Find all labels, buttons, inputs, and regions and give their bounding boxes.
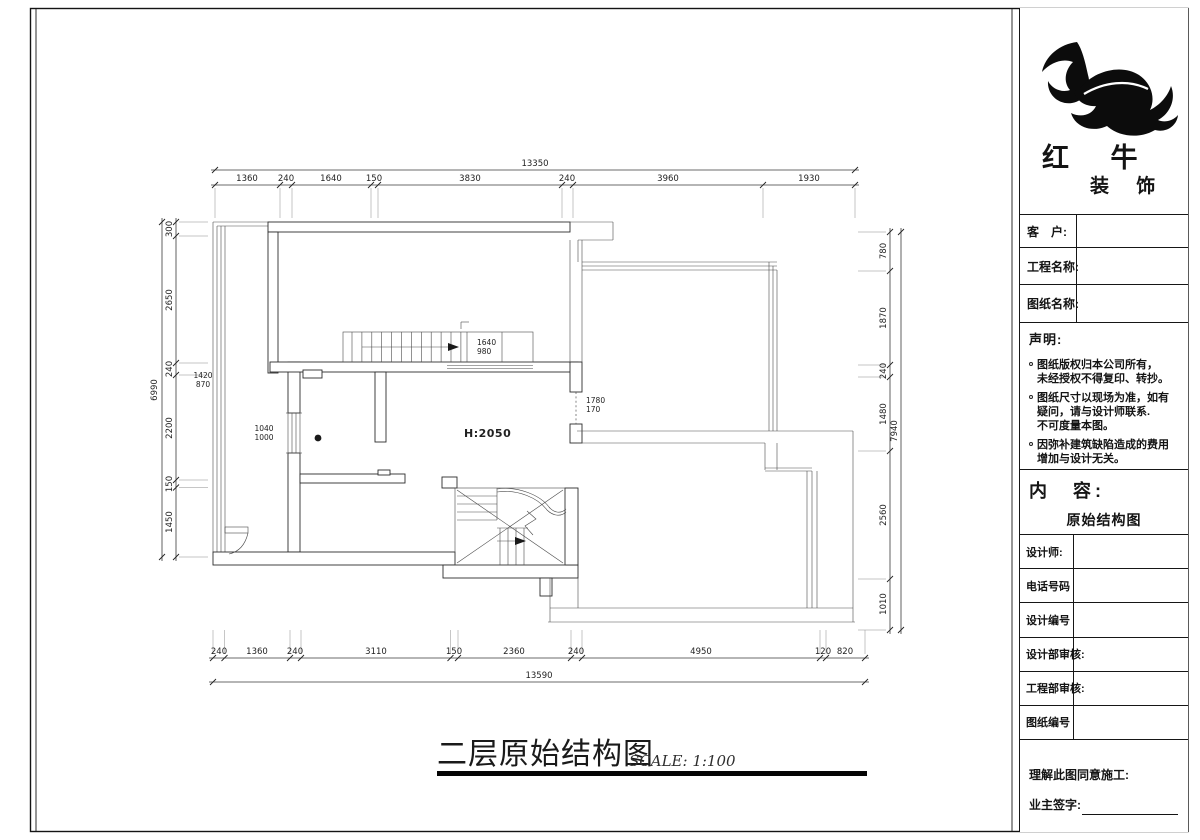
declaration: 声明: 图纸版权归本公司所有， 未经授权不得复印、转抄。 图纸尺寸以现场为准，如… (1020, 323, 1188, 470)
dim-label: 3830 (459, 174, 481, 184)
bullet-icon (1029, 395, 1033, 399)
row-label: 设计师: (1020, 535, 1074, 568)
drawing-scale: SCALE: 1:100 (629, 752, 736, 770)
field-label: 工程名称: (1020, 248, 1077, 284)
wall-size-label: 1420 (193, 371, 212, 380)
door-swing (225, 527, 248, 554)
info-rows: 设计师: 电话号码 设计编号 设计部审核: 工程部审核: 图纸编号 (1020, 535, 1188, 740)
walls (213, 222, 582, 596)
window-left (286, 413, 302, 453)
plan-labels: H:2050 1640 980 1780 170 1040 1000 1420 … (193, 338, 605, 442)
dim-label: 240 (879, 363, 889, 379)
dim-label: 240 (165, 361, 175, 377)
dim-label: 240 (559, 174, 575, 184)
dim-label: 150 (446, 647, 462, 657)
balcony-band-left (213, 222, 270, 552)
field-value[interactable] (1077, 285, 1188, 322)
dim-label: 150 (366, 174, 382, 184)
brand-subname: 装 饰 (1090, 171, 1166, 198)
row-value[interactable] (1074, 569, 1188, 602)
row-phone: 电话号码 (1020, 569, 1188, 603)
brand-logo-icon (1030, 36, 1180, 136)
window-size-label: 1000 (254, 433, 273, 442)
dim-label: 820 (837, 647, 853, 657)
bullet-icon (1029, 362, 1033, 366)
terrace-bottom-right (548, 431, 855, 622)
row-label: 图纸编号 (1020, 706, 1074, 739)
title-underline (437, 771, 867, 776)
dim-label: 240 (568, 647, 584, 657)
row-sheet-no: 图纸编号 (1020, 706, 1188, 740)
dim-label: 1480 (879, 403, 889, 425)
row-value[interactable] (1074, 706, 1188, 739)
dim-label: 240 (287, 647, 303, 657)
drawing-title-group: 二层原始结构图 SCALE: 1:100 (437, 737, 867, 776)
stair-size-label: 1640 (477, 338, 496, 347)
row-label: 电话号码 (1020, 569, 1074, 602)
field-row-customer: 客 户: (1020, 215, 1188, 248)
terrace-top-right (582, 262, 777, 431)
content-label: 内 容: (1020, 477, 1188, 503)
signature-line[interactable] (1082, 814, 1178, 815)
row-design-review: 设计部审核: (1020, 638, 1188, 672)
dim-label: 2560 (879, 504, 889, 526)
declaration-heading: 声明: (1029, 332, 1184, 349)
dim-bottom: 240 1360 240 3110 150 2360 240 4950 120 … (211, 647, 853, 681)
dim-top: 13350 1360 240 1640 150 3830 240 3960 19… (236, 159, 820, 184)
dim-left: 300 2650 240 2200 150 1450 6990 (150, 221, 175, 533)
dim-label: 1010 (879, 593, 889, 615)
dim-label: 1870 (879, 307, 889, 329)
field-row-drawing: 图纸名称: (1020, 285, 1188, 323)
dim-label: 240 (211, 647, 227, 657)
row-value[interactable] (1074, 603, 1188, 636)
dim-label: 2360 (503, 647, 525, 657)
row-label: 设计部审核: (1020, 638, 1074, 671)
owner-signature-label: 业主签字: (1029, 796, 1081, 813)
declaration-line: 疑问，请与设计师联系. (1037, 405, 1169, 419)
content-value: 原始结构图 (1020, 510, 1188, 530)
stair-size-label: 980 (477, 347, 492, 356)
dim-label: 6990 (150, 379, 160, 401)
declaration-line: 未经授权不得复印、转抄。 (1037, 372, 1169, 386)
stair-lower (455, 488, 566, 565)
field-value[interactable] (1077, 215, 1188, 247)
drawing-title: 二层原始结构图 (437, 737, 654, 772)
declaration-line: 增加与设计无关。 (1037, 452, 1169, 466)
dim-label: 7940 (890, 420, 900, 442)
stair-upper (343, 322, 533, 369)
field-label: 客 户: (1020, 215, 1077, 247)
dim-right: 780 1870 240 1480 2560 1010 7940 (879, 243, 900, 615)
dim-label: 3110 (365, 647, 387, 657)
dim-label: 1640 (320, 174, 342, 184)
declaration-item: 因弥补建筑缺陷造成的费用 增加与设计无关。 (1029, 438, 1184, 466)
dim-label: 3960 (657, 174, 679, 184)
declaration-line: 不可度量本图。 (1037, 419, 1169, 433)
dim-label: 1450 (165, 511, 175, 533)
wall-size-label: 870 (196, 380, 211, 389)
dim-label: 300 (165, 221, 175, 237)
row-designer: 设计师: (1020, 535, 1188, 569)
row-label: 设计编号 (1020, 603, 1074, 636)
row-engineering-review: 工程部审核: (1020, 672, 1188, 706)
dim-label: 13590 (525, 671, 552, 681)
dim-label: 1360 (236, 174, 258, 184)
declaration-line: 因弥补建筑缺陷造成的费用 (1037, 438, 1169, 452)
row-value[interactable] (1074, 672, 1188, 705)
dim-label: 780 (879, 243, 889, 259)
dim-label: 2650 (165, 289, 175, 311)
declaration-line: 图纸版权归本公司所有， (1037, 358, 1169, 372)
declaration-line: 图纸尺寸以现场为准，如有 (1037, 391, 1169, 405)
field-value[interactable] (1077, 248, 1188, 284)
agreement-text: 理解此图同意施工: (1029, 766, 1129, 783)
dim-label: 240 (278, 174, 294, 184)
dim-label: 120 (815, 647, 831, 657)
room-height-label: H:2050 (464, 427, 511, 440)
opening-size-label: 170 (586, 405, 601, 414)
title-block: 红 牛 装 饰 客 户: 工程名称: 图纸名称: 声明: 图纸版权归本公司所有，… (1019, 8, 1188, 832)
wall-right-mid (563, 222, 613, 424)
declaration-item: 图纸版权归本公司所有， 未经授权不得复印、转抄。 (1029, 358, 1184, 386)
brand-name: 红 牛 (1042, 136, 1155, 175)
field-row-project: 工程名称: (1020, 248, 1188, 285)
column-dot (315, 435, 322, 442)
field-label: 图纸名称: (1020, 285, 1077, 322)
sheet-frame (31, 9, 1189, 832)
brand-header: 红 牛 装 饰 (1020, 8, 1188, 215)
dim-label: 2200 (165, 417, 175, 439)
dim-label: 1930 (798, 174, 820, 184)
row-design-no: 设计编号 (1020, 603, 1188, 637)
row-value[interactable] (1074, 535, 1188, 568)
stair-up-arrow-icon (448, 343, 459, 351)
drawing-sheet: 13350 1360 240 1640 150 3830 240 3960 19… (0, 0, 1200, 840)
opening-size-label: 1780 (586, 396, 605, 405)
signature-section: 理解此图同意施工: 业主签字: (1020, 740, 1188, 832)
row-label: 工程部审核: (1020, 672, 1074, 705)
window-size-label: 1040 (254, 424, 273, 433)
dim-label: 4950 (690, 647, 712, 657)
dim-label: 13350 (521, 159, 548, 169)
stair-down-arrow-icon (515, 537, 526, 545)
declaration-item: 图纸尺寸以现场为准，如有 疑问，请与设计师联系. 不可度量本图。 (1029, 391, 1184, 433)
row-value[interactable] (1074, 638, 1188, 671)
dim-label: 150 (165, 476, 175, 492)
content-section: 内 容: 原始结构图 (1020, 470, 1188, 535)
dim-label: 1360 (246, 647, 268, 657)
bullet-icon (1029, 442, 1033, 446)
